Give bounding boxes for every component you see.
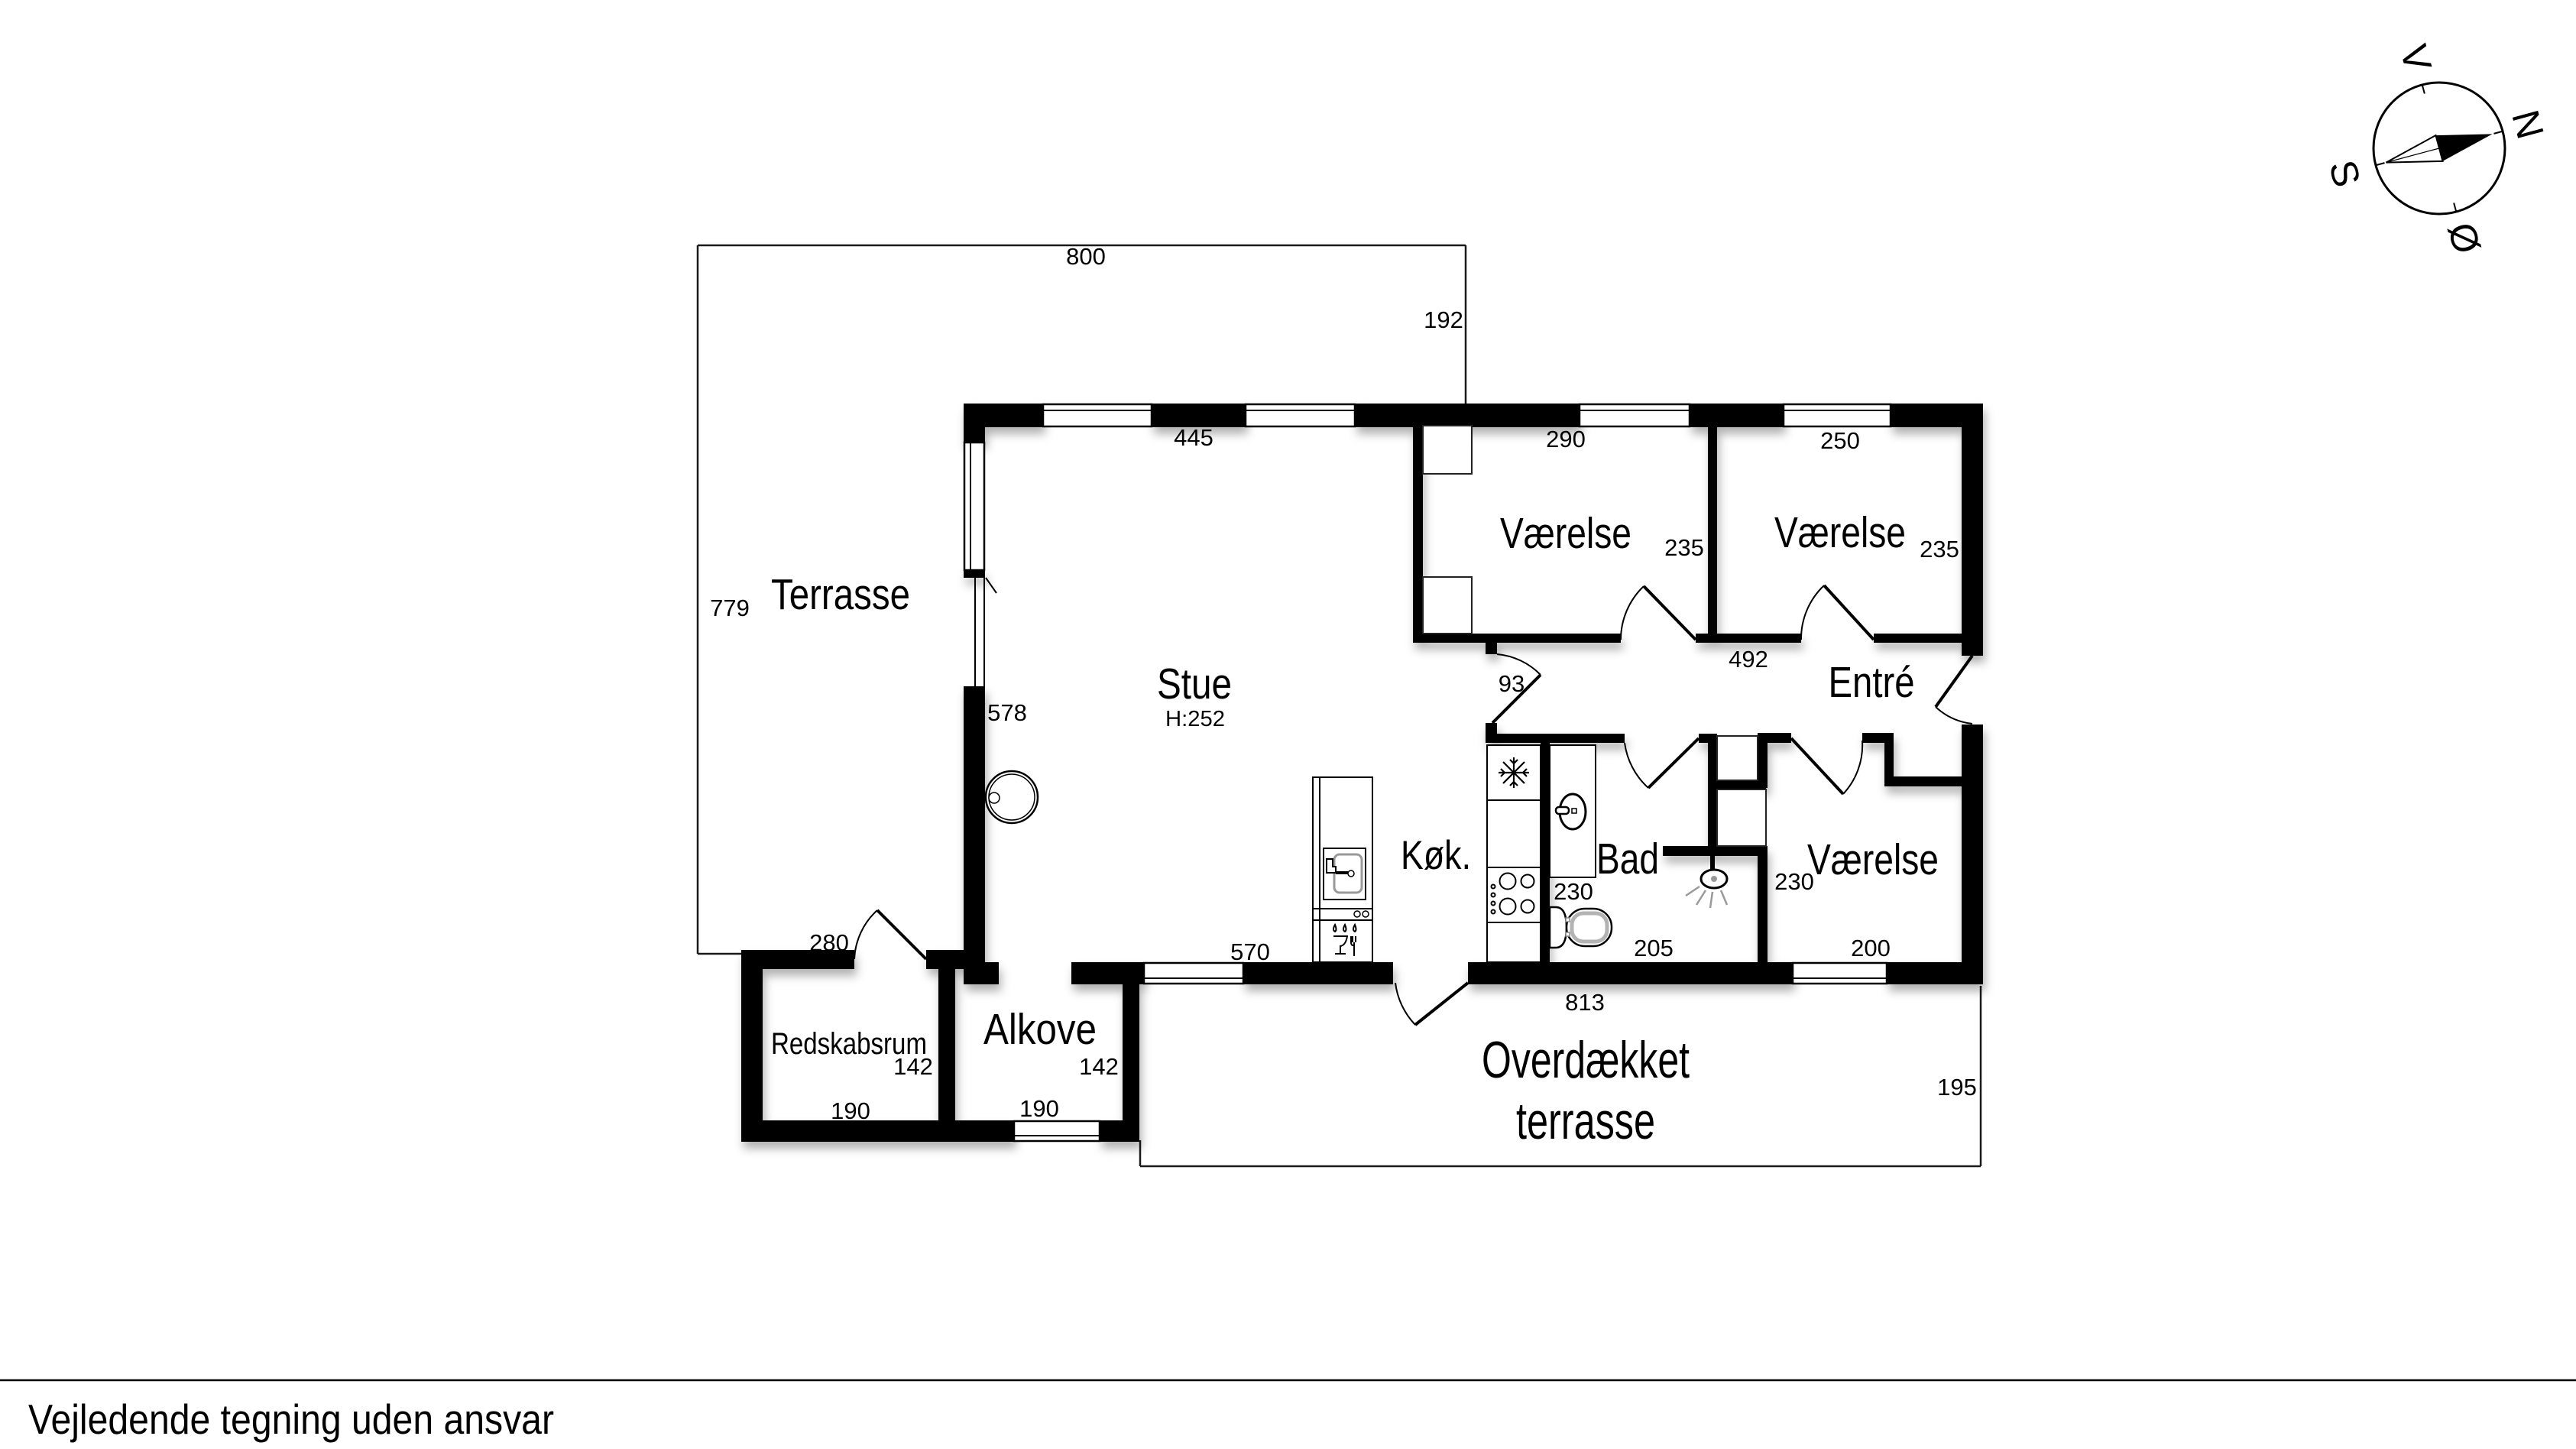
svg-text:192: 192 — [1424, 306, 1463, 333]
svg-text:Alkove: Alkove — [983, 1005, 1097, 1054]
svg-text:Stue: Stue — [1157, 660, 1232, 708]
svg-text:190: 190 — [1019, 1095, 1059, 1122]
svg-text:Værelse: Værelse — [1807, 835, 1939, 884]
svg-text:terrasse: terrasse — [1516, 1092, 1655, 1150]
svg-text:93: 93 — [1499, 670, 1525, 697]
svg-text:Terrasse: Terrasse — [771, 570, 910, 619]
svg-text:230: 230 — [1774, 868, 1814, 895]
svg-text:813: 813 — [1565, 989, 1605, 1016]
svg-text:290: 290 — [1546, 426, 1586, 452]
svg-text:200: 200 — [1851, 935, 1891, 961]
svg-text:Værelse: Værelse — [1500, 509, 1631, 558]
svg-text:190: 190 — [831, 1097, 870, 1124]
svg-text:Køk.: Køk. — [1401, 833, 1471, 878]
svg-text:205: 205 — [1634, 935, 1674, 961]
svg-text:800: 800 — [1066, 243, 1106, 270]
svg-text:142: 142 — [893, 1053, 933, 1080]
svg-text:195: 195 — [1937, 1074, 1977, 1101]
svg-text:250: 250 — [1820, 427, 1860, 454]
svg-text:570: 570 — [1230, 938, 1270, 965]
svg-text:142: 142 — [1079, 1053, 1119, 1080]
svg-text:230: 230 — [1554, 878, 1593, 905]
svg-text:578: 578 — [987, 699, 1027, 726]
svg-text:779: 779 — [710, 595, 750, 621]
svg-text:445: 445 — [1174, 424, 1213, 451]
svg-text:Bad: Bad — [1596, 835, 1659, 883]
svg-text:Vejledende tegning uden ansvar: Vejledende tegning uden ansvar — [28, 1396, 554, 1443]
svg-text:Overdækket: Overdækket — [1482, 1031, 1690, 1089]
svg-text:Værelse: Værelse — [1774, 508, 1906, 557]
svg-text:H:252: H:252 — [1165, 707, 1225, 731]
svg-text:235: 235 — [1664, 534, 1704, 561]
svg-text:Entré: Entré — [1829, 658, 1915, 707]
svg-text:492: 492 — [1729, 646, 1768, 673]
svg-text:280: 280 — [809, 929, 849, 956]
svg-text:235: 235 — [1920, 536, 1959, 562]
